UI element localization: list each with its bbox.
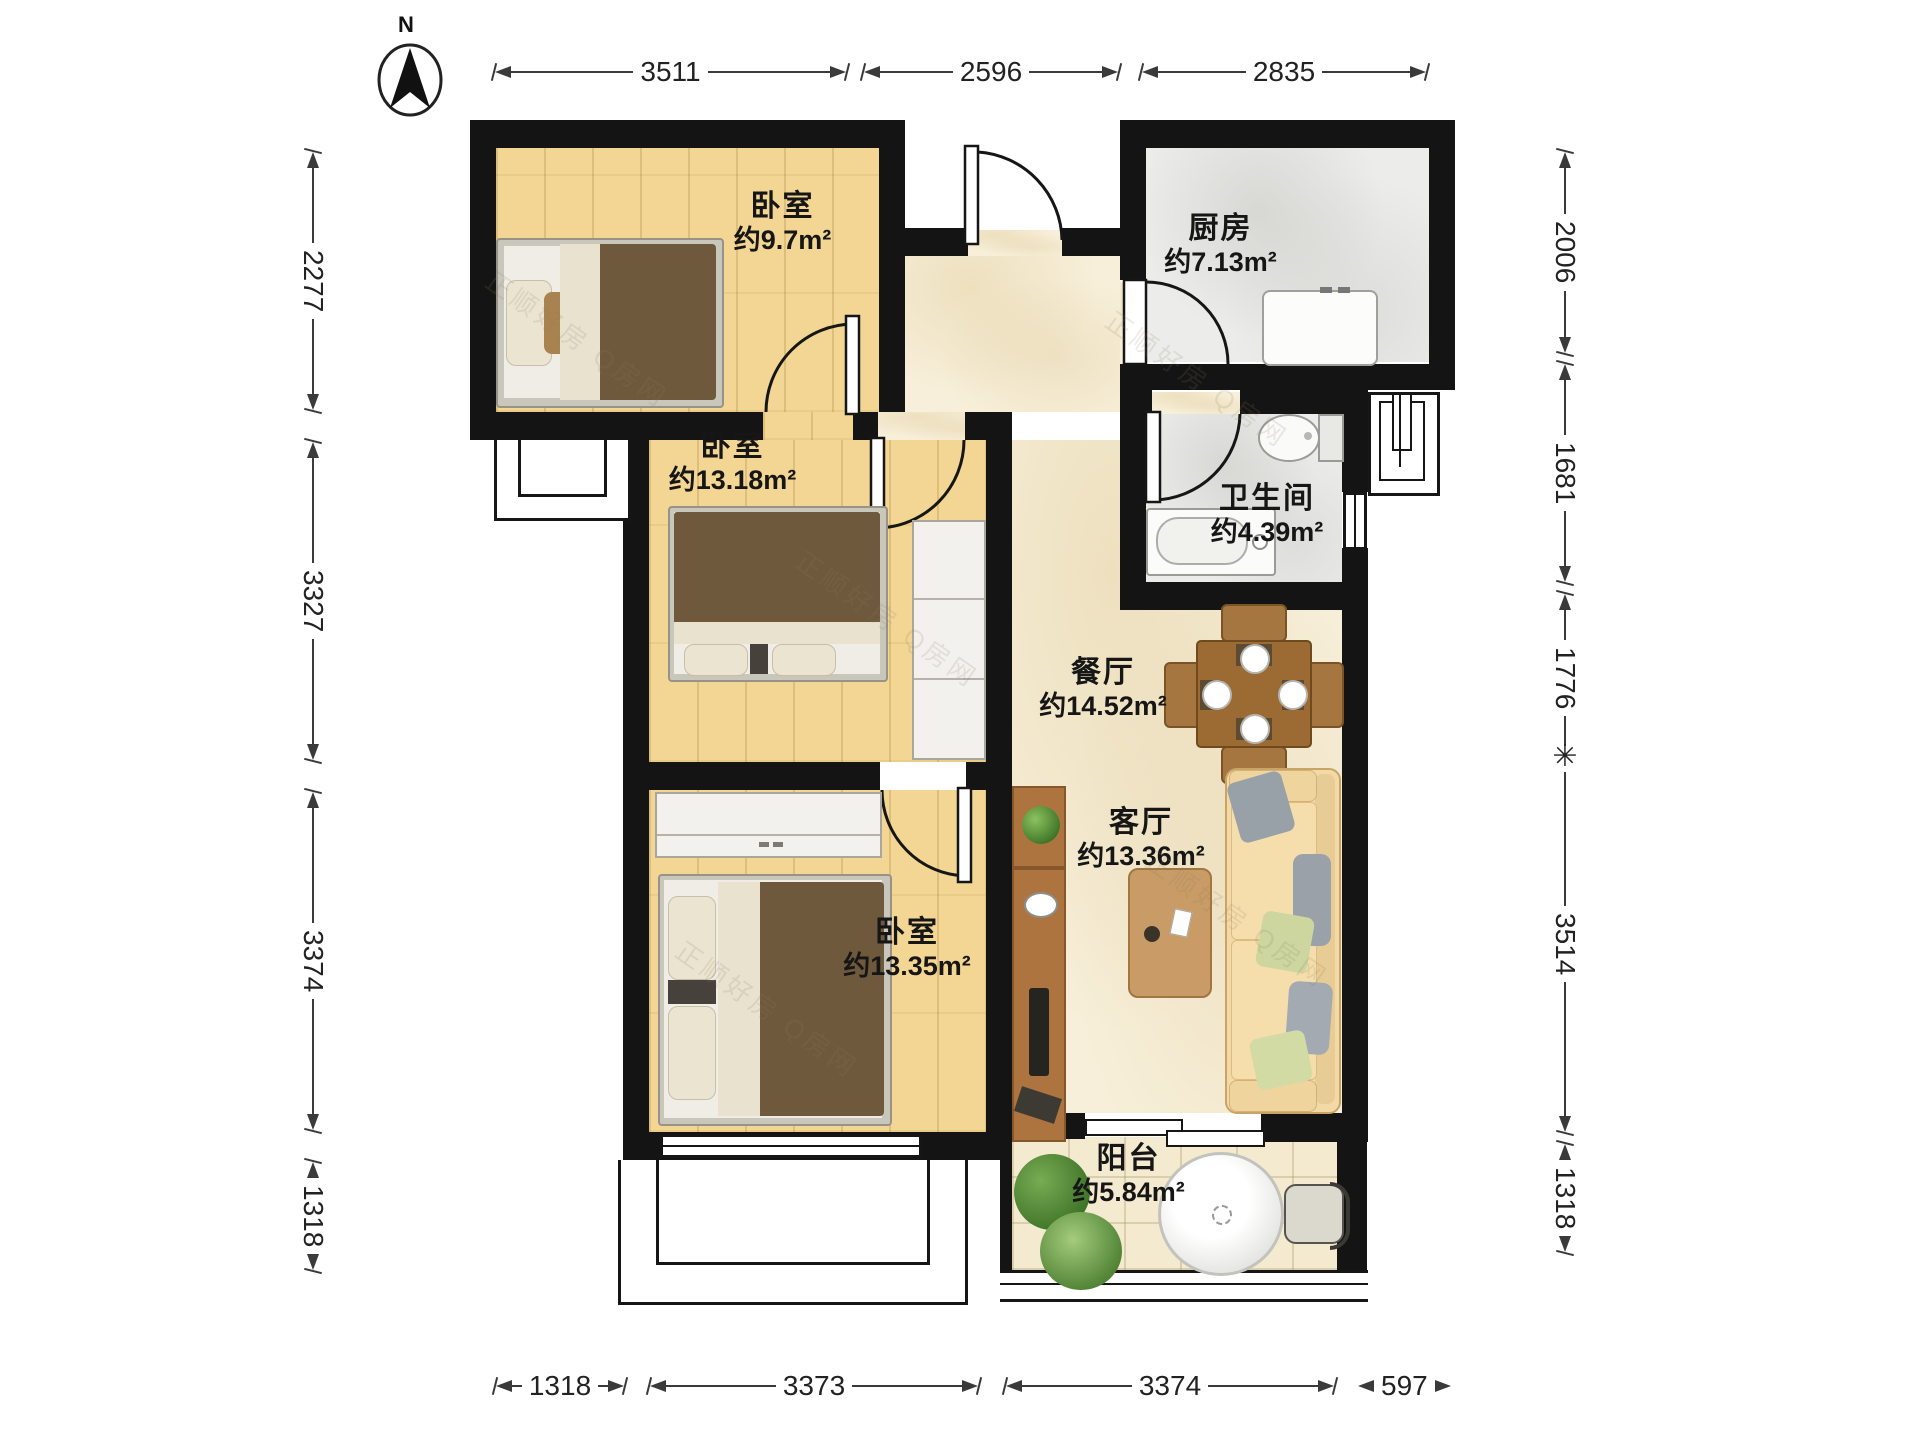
- remote-icon: [1014, 1086, 1062, 1124]
- dim-value: 3373: [776, 1370, 852, 1402]
- dim-top-3: 2835: [1140, 58, 1428, 86]
- dim-right-4: 3514: [1550, 772, 1580, 1134]
- dim-value: 1776: [1549, 640, 1581, 716]
- room-label-bedroom2: 卧室 约13.18m²: [640, 430, 825, 496]
- bathroom-door-leaf: [1146, 412, 1160, 502]
- dim-value: 1318: [297, 1178, 329, 1254]
- floor-plan: N: [0, 0, 1920, 1440]
- bedroom3-door-leaf: [958, 788, 971, 882]
- tv-icon: [1029, 988, 1049, 1076]
- dim-top-1: 3511: [493, 58, 848, 86]
- dim-value: 2006: [1549, 214, 1581, 290]
- dim-left-4: 1318: [298, 1160, 328, 1300]
- dim-value: 3511: [633, 56, 707, 88]
- entry-door-leaf: [965, 146, 978, 244]
- tv-cabinet: [1012, 868, 1066, 1142]
- dim-right-2: 1681: [1550, 362, 1580, 584]
- balcony-chair: [1284, 1184, 1344, 1244]
- room-label-dining: 餐厅 约14.52m²: [1008, 656, 1198, 722]
- dim-right-5: 1318: [1550, 1142, 1580, 1300]
- bedroom1-door-leaf: [846, 316, 859, 414]
- dim-bottom-1: 1318: [494, 1372, 626, 1400]
- dim-left-2: 3327: [298, 440, 328, 762]
- dining-chair: [1221, 604, 1287, 642]
- dim-bottom-2: 3373: [648, 1372, 980, 1400]
- north-label: N: [398, 12, 414, 38]
- book-icon: [1169, 908, 1192, 937]
- bedroom3-door-arc: [882, 790, 966, 876]
- dim-value: 1318: [522, 1370, 598, 1402]
- dim-left-1: 2277: [298, 150, 328, 412]
- dim-value: 3374: [1132, 1370, 1208, 1402]
- dim-value: 2835: [1246, 56, 1322, 88]
- dining-table: [1196, 640, 1312, 748]
- dim-value: 1318: [1549, 1160, 1581, 1236]
- bedroom1-door-arc: [766, 324, 853, 412]
- cup-icon: [1144, 926, 1160, 942]
- dim-value: 597: [1374, 1370, 1435, 1402]
- dim-value: 3514: [1549, 906, 1581, 982]
- room-label-balcony: 阳台 约5.84m²: [1036, 1142, 1221, 1208]
- bowl-icon: [1024, 892, 1058, 918]
- bedroom2-door-arc: [878, 440, 964, 528]
- dim-bottom-3: 3374: [1004, 1372, 1336, 1400]
- kitchen-counter: [1262, 290, 1378, 366]
- room-label-kitchen: 厨房 约7.13m²: [1128, 212, 1313, 278]
- dim-top-2: 2596: [862, 58, 1120, 86]
- dim-left-3: 3374: [298, 790, 328, 1132]
- dim-value: 2596: [953, 56, 1029, 88]
- balcony-plant: [1040, 1212, 1122, 1290]
- entry-door-arc: [978, 152, 1062, 240]
- dim-bottom-4: 597: [1358, 1372, 1436, 1400]
- dim-star-tick: ✳: [1552, 746, 1577, 768]
- room-label-bedroom3: 卧室 约13.35m²: [812, 916, 1002, 982]
- dim-right-3: 1776 ✳: [1550, 592, 1580, 768]
- dim-right-1: 2006: [1550, 150, 1580, 355]
- dim-value: 2277: [297, 243, 329, 319]
- room-label-bathroom: 卫生间 约4.39m²: [1172, 482, 1362, 548]
- dim-value: 3327: [297, 563, 329, 639]
- bedroom3-wardrobe: [655, 792, 882, 858]
- dim-value: 1681: [1549, 435, 1581, 511]
- room-label-bedroom1: 卧室 约9.7m²: [690, 190, 875, 256]
- room-label-living: 客厅 约13.36m²: [1046, 806, 1236, 872]
- dim-value: 3374: [297, 923, 329, 999]
